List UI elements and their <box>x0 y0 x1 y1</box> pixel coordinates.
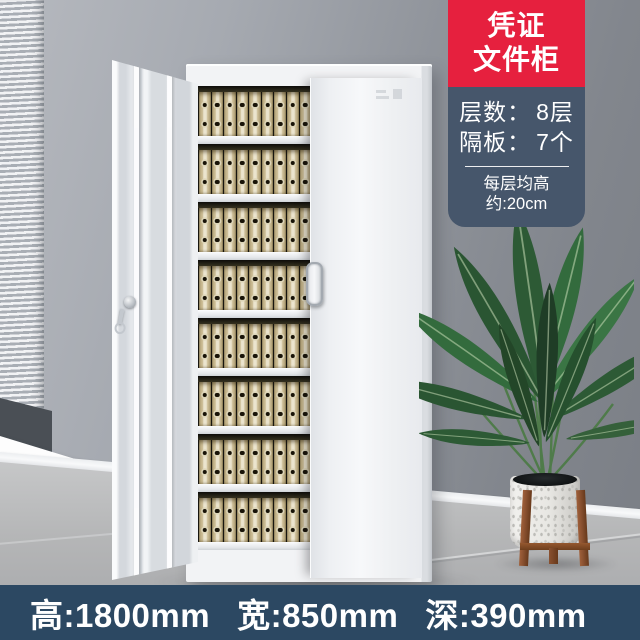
file-binder <box>287 498 299 542</box>
file-binder <box>262 150 274 194</box>
file-binder <box>224 208 236 252</box>
file-binder <box>237 150 249 194</box>
file-binder <box>274 208 286 252</box>
file-binder <box>274 440 286 484</box>
brand-logo <box>376 88 404 101</box>
spec-partitions-label: 隔板： <box>459 127 531 157</box>
shelf-board <box>198 368 312 376</box>
file-binder <box>212 440 224 484</box>
file-binder <box>224 382 236 426</box>
file-binder <box>212 324 224 368</box>
spec-note: 每层均高约:20cm <box>456 174 577 214</box>
shelf-board <box>198 484 312 492</box>
dimension-depth: 深:390mm <box>425 589 586 637</box>
dimension-banner: 高:1800mm 宽:850mm 深:390mm <box>0 585 640 640</box>
file-binder <box>262 498 274 542</box>
spec-partitions: 隔板：7个 <box>456 127 577 157</box>
file-binder <box>249 498 261 542</box>
binder-group <box>198 266 312 310</box>
file-binder <box>224 92 236 136</box>
file-binder <box>199 324 211 368</box>
product-badge: 凭证 文件柜 层数：8层 隔板：7个 每层均高约:20cm <box>448 0 585 227</box>
shelf-row <box>198 144 312 202</box>
file-binder <box>249 150 261 194</box>
file-binder <box>262 208 274 252</box>
door-groove <box>167 60 172 580</box>
file-binder <box>212 498 224 542</box>
file-binder <box>199 92 211 136</box>
file-binder <box>199 440 211 484</box>
file-binder <box>287 266 299 310</box>
file-binder <box>224 324 236 368</box>
shelf-board <box>198 194 312 202</box>
door-handle <box>306 262 323 306</box>
file-binder <box>199 382 211 426</box>
file-binder <box>237 440 249 484</box>
file-binder <box>262 382 274 426</box>
shelf-row <box>198 318 312 376</box>
file-binder <box>287 440 299 484</box>
file-binder <box>199 150 211 194</box>
file-binder <box>237 266 249 310</box>
cabinet-open-door <box>112 60 198 580</box>
file-binder <box>249 208 261 252</box>
file-binder <box>274 150 286 194</box>
file-binder <box>274 92 286 136</box>
binder-group <box>198 382 312 426</box>
product-title-line2: 文件柜 <box>452 43 581 77</box>
file-binder <box>224 440 236 484</box>
product-photo-scene: 凭证 文件柜 层数：8层 隔板：7个 每层均高约:20cm 高:1800mm 宽… <box>0 0 640 640</box>
binder-group <box>198 92 312 136</box>
file-binder <box>224 498 236 542</box>
file-binder <box>274 498 286 542</box>
door-key <box>117 309 124 324</box>
file-binder <box>199 498 211 542</box>
file-binder <box>287 208 299 252</box>
file-binder <box>237 382 249 426</box>
file-binder <box>249 382 261 426</box>
file-binder <box>287 324 299 368</box>
shelf-row <box>198 86 312 144</box>
spec-levels-value: 8层 <box>536 97 574 127</box>
door-groove <box>134 60 139 580</box>
dimension-height: 高:1800mm <box>30 589 210 637</box>
shelf-row <box>198 492 312 550</box>
file-binder <box>274 324 286 368</box>
binder-group <box>198 208 312 252</box>
spec-partitions-value: 7个 <box>536 127 574 157</box>
file-binder <box>237 208 249 252</box>
file-binder <box>249 324 261 368</box>
file-binder <box>274 266 286 310</box>
file-binder <box>249 266 261 310</box>
file-binder <box>212 150 224 194</box>
filing-cabinet <box>186 64 432 582</box>
file-binder <box>262 440 274 484</box>
shelf-row <box>198 434 312 492</box>
file-binder <box>262 92 274 136</box>
file-binder <box>199 208 211 252</box>
binder-group <box>198 440 312 484</box>
product-title: 凭证 文件柜 <box>448 0 585 87</box>
file-binder <box>287 150 299 194</box>
file-binder <box>212 266 224 310</box>
product-spec-panel: 层数：8层 隔板：7个 每层均高约:20cm <box>448 87 585 227</box>
window-blinds <box>0 0 44 432</box>
shelf-row <box>198 260 312 318</box>
binder-group <box>198 324 312 368</box>
file-binder <box>287 92 299 136</box>
spec-divider <box>465 166 569 167</box>
file-binder <box>249 92 261 136</box>
file-binder <box>262 324 274 368</box>
file-binder <box>274 382 286 426</box>
shelf-board <box>198 426 312 434</box>
binder-group <box>198 498 312 542</box>
dimension-width: 宽:850mm <box>237 589 398 637</box>
shelf-board <box>198 252 312 260</box>
file-binder <box>237 92 249 136</box>
file-binder <box>212 382 224 426</box>
file-binder <box>237 324 249 368</box>
file-binder <box>249 440 261 484</box>
file-binder <box>199 266 211 310</box>
door-lock <box>124 296 136 308</box>
product-title-line1: 凭证 <box>452 9 581 43</box>
cabinet-closed-door <box>310 78 422 578</box>
file-binder <box>212 208 224 252</box>
cabinet-shelves <box>198 86 312 550</box>
shelf-board <box>198 310 312 318</box>
shelf-row <box>198 376 312 434</box>
shelf-board <box>198 542 312 550</box>
file-binder <box>262 266 274 310</box>
file-binder <box>287 382 299 426</box>
shelf-board <box>198 136 312 144</box>
spec-levels-label: 层数： <box>459 97 531 127</box>
file-binder <box>237 498 249 542</box>
pot-stand-center <box>549 548 558 564</box>
spec-levels: 层数：8层 <box>456 97 577 127</box>
binder-group <box>198 150 312 194</box>
file-binder <box>224 150 236 194</box>
shelf-row <box>198 202 312 260</box>
file-binder <box>224 266 236 310</box>
file-binder <box>212 92 224 136</box>
